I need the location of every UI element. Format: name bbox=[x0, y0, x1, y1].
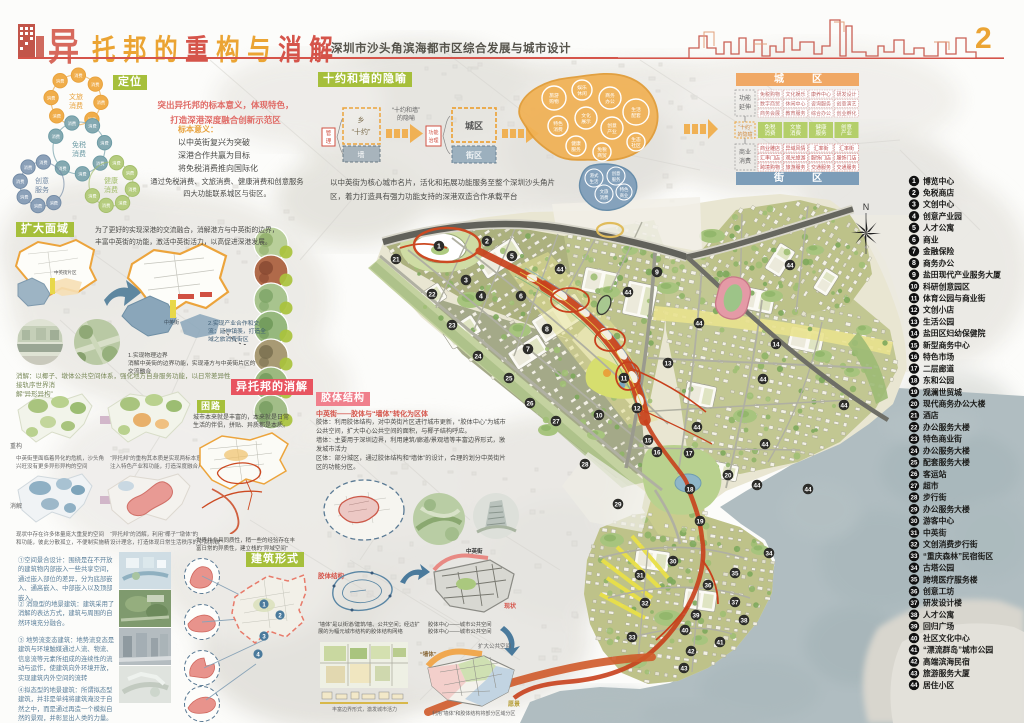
svg-text:35: 35 bbox=[731, 570, 739, 577]
svg-text:的隐喻: 的隐喻 bbox=[397, 114, 415, 122]
svg-text:街区: 街区 bbox=[465, 150, 482, 160]
svg-text:“十约”: “十约” bbox=[738, 124, 752, 131]
svg-text:17: 17 bbox=[685, 450, 693, 457]
svg-text:消费: 消费 bbox=[69, 101, 83, 110]
svg-text:产业: 产业 bbox=[841, 129, 853, 137]
svg-text:综合办公: 综合办公 bbox=[811, 110, 831, 117]
svg-text:商贸: 商贸 bbox=[597, 152, 607, 159]
svg-text:19: 19 bbox=[696, 518, 704, 525]
svg-text:消费: 消费 bbox=[104, 185, 118, 194]
svg-text:健康: 健康 bbox=[571, 140, 581, 147]
svg-text:利用“墙体”和胶体结构将部分区域分区: 利用“墙体”和胶体结构将部分区域分区 bbox=[432, 710, 515, 716]
svg-text:消费: 消费 bbox=[47, 94, 55, 101]
svg-text:31: 31 bbox=[636, 572, 644, 579]
svg-text:健康: 健康 bbox=[104, 176, 118, 185]
svg-text:异域风情: 异域风情 bbox=[785, 145, 805, 152]
svg-text:33: 33 bbox=[628, 634, 636, 641]
svg-text:旅游: 旅游 bbox=[549, 92, 559, 99]
svg-text:康养中心: 康养中心 bbox=[811, 91, 831, 98]
svg-text:功能: 功能 bbox=[739, 94, 751, 102]
svg-text:创业孵化: 创业孵化 bbox=[836, 110, 856, 117]
svg-text:44: 44 bbox=[556, 266, 564, 273]
svg-text:消费: 消费 bbox=[739, 157, 751, 165]
svg-text:商业雕店: 商业雕店 bbox=[760, 145, 780, 152]
svg-text:44: 44 bbox=[624, 289, 632, 296]
svg-text:20: 20 bbox=[724, 472, 732, 479]
svg-text:购物: 购物 bbox=[549, 98, 559, 105]
svg-text:消费: 消费 bbox=[112, 160, 120, 167]
svg-text:8: 8 bbox=[545, 326, 549, 333]
svg-text:消费: 消费 bbox=[102, 202, 110, 209]
svg-text:消费: 消费 bbox=[20, 194, 28, 201]
svg-text:免税: 免税 bbox=[72, 140, 86, 149]
svg-text:免税: 免税 bbox=[597, 146, 607, 153]
svg-text:中英街片区: 中英街片区 bbox=[54, 269, 77, 276]
svg-text:汇率街: 汇率街 bbox=[839, 145, 854, 152]
svg-text:社区: 社区 bbox=[631, 142, 641, 149]
svg-text:理: 理 bbox=[326, 138, 332, 145]
svg-text:的隐喻: 的隐喻 bbox=[737, 131, 752, 138]
svg-text:现状中存在许多体量庞大重复的空间: 现状中存在许多体量庞大重复的空间 bbox=[16, 530, 104, 538]
svg-text:服饰门店: 服饰门店 bbox=[836, 155, 856, 162]
svg-text:消解: 消解 bbox=[10, 502, 22, 510]
svg-text:特色: 特色 bbox=[620, 186, 629, 192]
svg-text:数字商贸: 数字商贸 bbox=[760, 101, 780, 108]
svg-text:39: 39 bbox=[692, 612, 700, 619]
svg-text:生态: 生态 bbox=[631, 136, 641, 143]
svg-text:消费: 消费 bbox=[52, 133, 60, 140]
svg-text:服务: 服务 bbox=[571, 146, 581, 153]
svg-text:交通服务: 交通服务 bbox=[836, 164, 856, 171]
svg-text:观光旅游: 观光旅游 bbox=[785, 155, 805, 162]
svg-text:交通服务: 交通服务 bbox=[811, 164, 831, 171]
svg-text:管: 管 bbox=[326, 129, 332, 137]
svg-text:创意: 创意 bbox=[841, 123, 853, 131]
svg-text:消费: 消费 bbox=[553, 126, 563, 133]
svg-text:消费: 消费 bbox=[74, 72, 82, 79]
svg-text:“异托邦”的消解，利用“椰子”“墩体”的: “异托邦”的消解，利用“椰子”“墩体”的 bbox=[110, 530, 198, 538]
svg-text:22: 22 bbox=[428, 291, 436, 298]
svg-text:延伸: 延伸 bbox=[739, 103, 751, 111]
svg-text:愿景: 愿景 bbox=[508, 700, 520, 708]
svg-text:健康: 健康 bbox=[815, 123, 827, 131]
svg-text:消费: 消费 bbox=[88, 123, 96, 130]
svg-text:办公: 办公 bbox=[605, 98, 615, 105]
svg-text:消费: 消费 bbox=[53, 113, 61, 120]
svg-text:消费: 消费 bbox=[118, 200, 126, 207]
svg-text:服务: 服务 bbox=[35, 185, 49, 194]
svg-text:消费: 消费 bbox=[56, 78, 64, 85]
svg-text:配套: 配套 bbox=[631, 112, 641, 119]
svg-text:消费: 消费 bbox=[88, 193, 96, 200]
svg-text:文化: 文化 bbox=[581, 112, 591, 119]
svg-text:12: 12 bbox=[633, 405, 641, 412]
svg-text:消费: 消费 bbox=[16, 178, 24, 185]
svg-text:商务: 商务 bbox=[605, 92, 615, 99]
svg-text:42: 42 bbox=[687, 648, 695, 655]
svg-text:咨询服务: 咨询服务 bbox=[811, 101, 831, 108]
svg-text:产业: 产业 bbox=[607, 128, 617, 135]
svg-text:23: 23 bbox=[448, 322, 456, 329]
svg-text:生活: 生活 bbox=[631, 106, 641, 113]
svg-text:41: 41 bbox=[716, 639, 724, 646]
svg-text:特色: 特色 bbox=[553, 120, 563, 127]
svg-text:休闲: 休闲 bbox=[577, 90, 587, 97]
svg-text:26: 26 bbox=[526, 400, 534, 407]
svg-text:14: 14 bbox=[772, 341, 780, 348]
svg-text:11: 11 bbox=[621, 375, 628, 382]
svg-text:44: 44 bbox=[753, 482, 761, 489]
svg-text:消费: 消费 bbox=[790, 129, 802, 137]
svg-text:34: 34 bbox=[765, 550, 773, 557]
svg-text:旅游服务: 旅游服务 bbox=[785, 164, 805, 171]
svg-text:44: 44 bbox=[759, 376, 767, 383]
svg-text:13: 13 bbox=[664, 360, 672, 367]
svg-text:6: 6 bbox=[519, 293, 523, 300]
svg-text:消费: 消费 bbox=[126, 170, 134, 177]
svg-text:30: 30 bbox=[669, 558, 677, 565]
svg-text:2: 2 bbox=[485, 238, 489, 245]
svg-text:21: 21 bbox=[392, 256, 400, 263]
svg-text:商业: 商业 bbox=[739, 148, 751, 156]
svg-text:44: 44 bbox=[786, 262, 794, 269]
svg-text:15: 15 bbox=[644, 437, 652, 444]
svg-text:3: 3 bbox=[464, 277, 468, 284]
svg-text:创意演艺: 创意演艺 bbox=[836, 101, 856, 108]
svg-text:28: 28 bbox=[581, 461, 589, 468]
svg-text:9: 9 bbox=[655, 269, 659, 276]
svg-text:“十约”: “十约” bbox=[352, 127, 371, 136]
svg-text:现状: 现状 bbox=[504, 602, 517, 610]
svg-text:消费: 消费 bbox=[100, 140, 108, 147]
svg-text:乡: 乡 bbox=[358, 116, 365, 124]
svg-text:消费: 消费 bbox=[78, 171, 86, 178]
svg-text:服务: 服务 bbox=[815, 129, 827, 137]
svg-text:教育服务: 教育服务 bbox=[785, 110, 805, 117]
svg-text:25: 25 bbox=[505, 375, 513, 382]
svg-text:40: 40 bbox=[681, 627, 689, 634]
svg-text:消费: 消费 bbox=[91, 81, 99, 88]
svg-text:32: 32 bbox=[641, 600, 649, 607]
svg-text:休闲中心: 休闲中心 bbox=[785, 101, 805, 108]
svg-text:16: 16 bbox=[653, 449, 661, 456]
svg-text:中英街: 中英街 bbox=[164, 319, 179, 326]
svg-text:消费: 消费 bbox=[68, 120, 76, 127]
svg-text:N: N bbox=[863, 202, 870, 212]
svg-text:44: 44 bbox=[695, 320, 703, 327]
svg-text:创意: 创意 bbox=[35, 176, 49, 185]
svg-text:4: 4 bbox=[479, 293, 483, 300]
svg-text:商务会展: 商务会展 bbox=[760, 110, 780, 117]
svg-text:免税购物: 免税购物 bbox=[760, 91, 780, 98]
svg-text:展示: 展示 bbox=[581, 119, 591, 125]
svg-text:37: 37 bbox=[731, 599, 739, 606]
svg-text:5: 5 bbox=[510, 253, 514, 260]
svg-text:和功能，彼此分散孤立，不便制实施精: 和功能，彼此分散孤立，不便制实施精 bbox=[16, 538, 110, 546]
svg-text:城区: 城区 bbox=[465, 120, 483, 131]
svg-text:服饰门店: 服饰门店 bbox=[811, 155, 831, 162]
svg-text:兴旺没有更多异形异构的空间: 兴旺没有更多异形异构的空间 bbox=[16, 462, 88, 470]
svg-text:消费: 消费 bbox=[39, 159, 47, 166]
svg-text:44: 44 bbox=[693, 424, 701, 431]
svg-text:治理: 治理 bbox=[428, 137, 438, 144]
svg-text:44: 44 bbox=[761, 441, 769, 448]
svg-text:重构: 重构 bbox=[10, 442, 22, 450]
svg-text:免税: 免税 bbox=[764, 123, 776, 131]
svg-text:44: 44 bbox=[840, 402, 848, 409]
svg-text:墙: 墙 bbox=[358, 150, 365, 159]
svg-text:丰富边界形式，激发城市活力: 丰富边界形式，激发城市活力 bbox=[332, 706, 397, 712]
svg-text:消费: 消费 bbox=[97, 99, 105, 106]
svg-text:娱乐: 娱乐 bbox=[577, 84, 587, 91]
svg-text:跨境购物: 跨境购物 bbox=[760, 164, 780, 171]
svg-text:消费: 消费 bbox=[764, 129, 776, 137]
svg-text:10: 10 bbox=[595, 412, 603, 419]
svg-text:研发设计: 研发设计 bbox=[836, 91, 856, 98]
svg-text:7: 7 bbox=[526, 346, 530, 353]
svg-text:18: 18 bbox=[686, 486, 694, 493]
svg-text:消费: 消费 bbox=[24, 164, 32, 171]
svg-text:27: 27 bbox=[552, 418, 560, 425]
svg-text:消费: 消费 bbox=[34, 202, 42, 209]
svg-text:38: 38 bbox=[740, 617, 748, 624]
svg-text:44: 44 bbox=[804, 486, 812, 493]
svg-text:文旅: 文旅 bbox=[69, 92, 83, 101]
svg-text:文旅: 文旅 bbox=[790, 123, 802, 131]
svg-text:36: 36 bbox=[704, 582, 712, 589]
svg-text:消费: 消费 bbox=[50, 199, 58, 206]
svg-text:1: 1 bbox=[437, 243, 441, 250]
svg-text:文化娱乐: 文化娱乐 bbox=[785, 91, 805, 98]
svg-text:汇率门店: 汇率门店 bbox=[760, 155, 780, 162]
svg-text:“十约和墙”: “十约和墙” bbox=[392, 106, 420, 114]
svg-text:商业: 商业 bbox=[620, 192, 629, 199]
svg-text:创意: 创意 bbox=[607, 122, 617, 129]
svg-text:消费: 消费 bbox=[128, 186, 136, 193]
svg-text:中英街里面临着异化的危机，沙头角: 中英街里面临着异化的危机，沙头角 bbox=[16, 454, 104, 462]
svg-text:43: 43 bbox=[680, 665, 688, 672]
svg-text:24: 24 bbox=[474, 353, 482, 360]
svg-text:29: 29 bbox=[614, 501, 622, 508]
svg-text:消费: 消费 bbox=[72, 149, 86, 158]
svg-text:功能: 功能 bbox=[428, 129, 438, 136]
svg-text:扩大公共空间: 扩大公共空间 bbox=[478, 642, 511, 650]
svg-text:汇率街: 汇率街 bbox=[813, 145, 828, 152]
